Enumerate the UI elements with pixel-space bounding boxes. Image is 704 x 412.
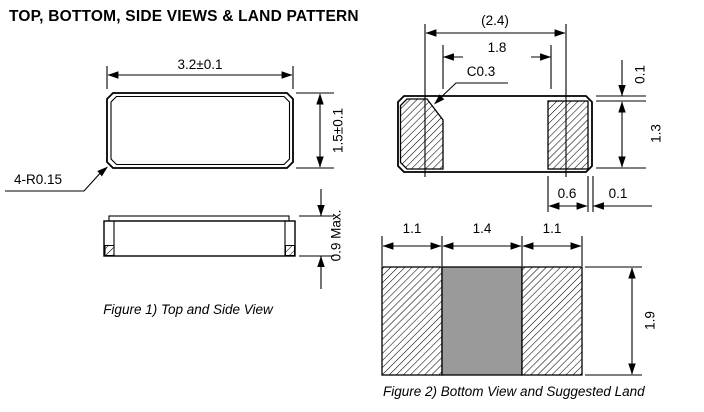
land-left-pad-dim-label: 1.1 [392, 221, 432, 236]
land-pattern-left-pad [382, 267, 442, 375]
pad-width-dim-label: 0.6 [547, 186, 587, 201]
chamfer-label: C0.3 [456, 64, 506, 79]
pad-height-dim-label: 1.3 [649, 114, 664, 154]
drawing-canvas: TOP, BOTTOM, SIDE VIEWS & LAND PATTERN 3… [0, 0, 704, 412]
bottom-view-right-pad [548, 101, 588, 169]
pad-side-inset-dim-label: 0.1 [598, 186, 638, 201]
side-view-right-terminal [286, 246, 295, 256]
land-center-dim-label: 1.4 [462, 221, 502, 236]
pad-top-inset-dim-label: 0.1 [633, 55, 648, 95]
side-view-lid [109, 216, 289, 221]
bottom-view [398, 24, 652, 212]
electrode-span-dim-label: (2.4) [465, 13, 525, 28]
land-pattern-center-area [442, 267, 522, 375]
side-max-height-dim-label: 0.9 Max. [329, 201, 344, 271]
corner-radius-label: 4-R0.15 [14, 172, 62, 187]
page-title: TOP, BOTTOM, SIDE VIEWS & LAND PATTERN [9, 8, 359, 26]
drawing-linework [0, 0, 704, 412]
top-width-dim-label: 3.2±0.1 [150, 57, 250, 72]
side-view-left-terminal [105, 246, 114, 256]
figure1-caption: Figure 1) Top and Side View [93, 302, 283, 318]
top-view-outer-outline [107, 93, 293, 168]
land-pattern [382, 236, 642, 375]
land-pattern-right-pad [522, 267, 582, 375]
side-view-body [104, 221, 295, 256]
land-right-pad-dim-label: 1.1 [532, 221, 572, 236]
top-height-dim-label: 1.5±0.1 [331, 96, 346, 166]
land-height-dim-label: 1.9 [643, 301, 658, 341]
figure2-caption: Figure 2) Bottom View and Suggested Land [383, 384, 683, 400]
electrode-gap-dim-label: 1.8 [477, 40, 517, 55]
side-view [104, 189, 334, 289]
